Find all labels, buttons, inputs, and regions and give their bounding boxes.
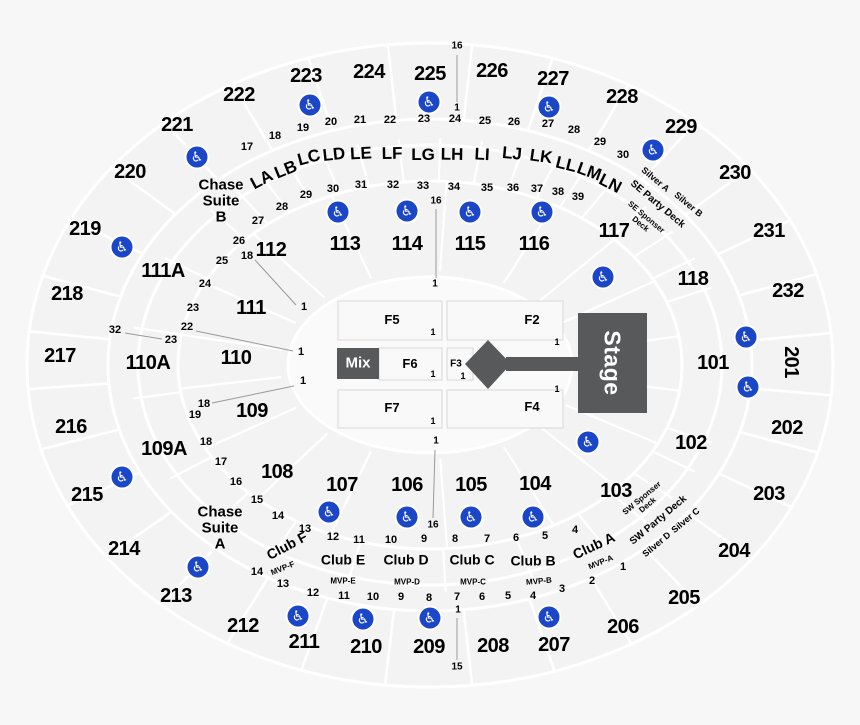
floor-section-f3[interactable]: F3 bbox=[450, 360, 462, 371]
section-117[interactable]: 117 bbox=[599, 221, 630, 243]
section-226[interactable]: 226 bbox=[476, 61, 508, 83]
club-club-d[interactable]: Club D bbox=[383, 552, 428, 567]
section-228[interactable]: 228 bbox=[606, 87, 638, 109]
row-number-21: 21 bbox=[354, 115, 366, 127]
row-number-5: 5 bbox=[542, 531, 548, 543]
suite-chase-suite-a[interactable]: Chase Suite A bbox=[197, 505, 242, 554]
row-number-18: 18 bbox=[241, 251, 253, 263]
wheelchair-accessible-icon: ♿ bbox=[539, 97, 560, 118]
row-number-30: 30 bbox=[327, 184, 339, 196]
row-marker-1: 1 bbox=[455, 606, 461, 617]
section-229[interactable]: 229 bbox=[665, 117, 697, 139]
row-number-3: 3 bbox=[559, 584, 565, 596]
section-210[interactable]: 210 bbox=[350, 637, 382, 659]
section-104[interactable]: 104 bbox=[519, 474, 551, 496]
row-number-14: 14 bbox=[272, 511, 284, 523]
row-marker-16: 16 bbox=[427, 521, 438, 532]
row-number-10: 10 bbox=[367, 592, 379, 604]
section-101[interactable]: 101 bbox=[697, 353, 729, 375]
section-224[interactable]: 224 bbox=[353, 62, 385, 84]
row-number-26: 26 bbox=[233, 236, 245, 248]
row-number-37: 37 bbox=[531, 184, 543, 196]
letter-section-ld[interactable]: LD bbox=[322, 145, 346, 166]
floor-section-box[interactable] bbox=[447, 390, 563, 428]
wheelchair-accessible-icon: ♿ bbox=[187, 147, 208, 168]
row-number-31: 31 bbox=[355, 180, 367, 192]
row-number-19: 19 bbox=[189, 410, 201, 422]
row-number-20: 20 bbox=[325, 117, 337, 129]
wheelchair-accessible-icon: ♿ bbox=[539, 607, 560, 628]
row-number-23: 23 bbox=[187, 303, 199, 315]
row-number-32: 32 bbox=[109, 325, 121, 337]
section-102[interactable]: 102 bbox=[675, 433, 707, 455]
section-206[interactable]: 206 bbox=[607, 617, 639, 639]
row-number-18: 18 bbox=[269, 131, 281, 143]
row-marker-1: 1 bbox=[433, 437, 439, 448]
row-number-1: 1 bbox=[300, 376, 306, 388]
row-number-38: 38 bbox=[552, 187, 564, 199]
section-109a[interactable]: 109A bbox=[141, 439, 187, 461]
row-number-28: 28 bbox=[276, 202, 288, 214]
section-116[interactable]: 116 bbox=[519, 234, 550, 256]
floor-section-f5[interactable]: F5 bbox=[384, 313, 399, 327]
section-108[interactable]: 108 bbox=[261, 462, 293, 484]
section-231[interactable]: 231 bbox=[753, 221, 785, 243]
section-110a[interactable]: 110A bbox=[126, 353, 171, 375]
wheelchair-accessible-icon: ♿ bbox=[353, 609, 374, 630]
row-number-9: 9 bbox=[421, 534, 427, 546]
section-207[interactable]: 207 bbox=[538, 635, 570, 657]
section-223[interactable]: 223 bbox=[290, 66, 322, 88]
section-115[interactable]: 115 bbox=[455, 234, 486, 256]
row-number-14: 14 bbox=[251, 567, 263, 579]
wheelchair-accessible-icon: ♿ bbox=[532, 202, 553, 223]
row-marker-15: 15 bbox=[451, 663, 462, 674]
row-number-12: 12 bbox=[307, 588, 319, 600]
row-number-16: 16 bbox=[230, 477, 242, 489]
letter-section-lg[interactable]: LG bbox=[411, 146, 435, 164]
row-number-29: 29 bbox=[594, 137, 606, 149]
row-marker-1: 1 bbox=[454, 104, 460, 115]
row-number-23: 23 bbox=[418, 114, 430, 126]
section-208[interactable]: 208 bbox=[477, 636, 509, 658]
wheelchair-accessible-icon: ♿ bbox=[420, 608, 441, 629]
wheelchair-accessible-icon: ♿ bbox=[188, 557, 209, 578]
row-marker-16: 16 bbox=[451, 42, 462, 53]
row-number-35: 35 bbox=[481, 183, 493, 195]
wheelchair-accessible-icon: ♿ bbox=[736, 327, 757, 348]
suite-chase-suite-b[interactable]: Chase Suite B bbox=[198, 178, 243, 227]
section-111[interactable]: 111 bbox=[236, 298, 266, 320]
letter-section-li[interactable]: LI bbox=[474, 145, 490, 164]
wheelchair-accessible-icon: ♿ bbox=[738, 377, 759, 398]
row-number-2: 2 bbox=[589, 576, 595, 588]
row-number-10: 10 bbox=[385, 535, 397, 547]
row-number-11: 11 bbox=[353, 535, 365, 547]
wheelchair-accessible-icon: ♿ bbox=[461, 507, 482, 528]
floor-row-marker-1: 1 bbox=[554, 385, 559, 395]
section-109[interactable]: 109 bbox=[236, 401, 268, 423]
row-number-28: 28 bbox=[568, 125, 580, 137]
wheelchair-accessible-icon: ♿ bbox=[300, 95, 321, 116]
row-number-7: 7 bbox=[454, 592, 460, 604]
wheelchair-accessible-icon: ♿ bbox=[419, 92, 440, 113]
floor-section-f6[interactable]: F6 bbox=[402, 357, 417, 371]
row-number-11: 11 bbox=[338, 591, 350, 603]
row-number-32: 32 bbox=[387, 180, 399, 192]
section-215[interactable]: 215 bbox=[71, 485, 103, 507]
row-number-17: 17 bbox=[215, 457, 227, 469]
row-number-8: 8 bbox=[452, 534, 458, 546]
row-number-36: 36 bbox=[507, 183, 519, 195]
letter-section-lf[interactable]: LF bbox=[381, 145, 402, 164]
floor-section-f2[interactable]: F2 bbox=[524, 313, 539, 327]
row-marker-16: 16 bbox=[430, 197, 441, 208]
section-111a[interactable]: 111A bbox=[141, 261, 185, 283]
wheelchair-accessible-icon: ♿ bbox=[288, 606, 309, 627]
floor-row-marker-1: 1 bbox=[554, 338, 559, 348]
section-211[interactable]: 211 bbox=[289, 632, 320, 654]
row-number-6: 6 bbox=[513, 533, 519, 545]
section-232[interactable]: 232 bbox=[772, 281, 804, 303]
row-number-7: 7 bbox=[484, 534, 490, 546]
section-212[interactable]: 212 bbox=[227, 616, 259, 638]
mvp-mvp-e[interactable]: MVP-E bbox=[330, 578, 355, 587]
section-221[interactable]: 221 bbox=[161, 115, 193, 137]
section-205[interactable]: 205 bbox=[668, 588, 700, 610]
section-230[interactable]: 230 bbox=[719, 163, 751, 185]
floor-row-marker-1: 1 bbox=[430, 328, 435, 338]
wheelchair-accessible-icon: ♿ bbox=[112, 467, 133, 488]
floor-row-marker-1: 1 bbox=[430, 417, 435, 427]
wheelchair-accessible-icon: ♿ bbox=[578, 432, 599, 453]
row-number-4: 4 bbox=[572, 525, 578, 537]
section-106[interactable]: 106 bbox=[391, 475, 423, 497]
arena-seating-map: Stage Mix 223224225226227222228221229220… bbox=[0, 0, 860, 725]
wheelchair-accessible-icon: ♿ bbox=[319, 502, 340, 523]
stage-runway bbox=[506, 357, 580, 371]
floor-row-marker-1: 1 bbox=[460, 372, 465, 382]
row-number-25: 25 bbox=[216, 256, 228, 268]
section-219[interactable]: 219 bbox=[69, 219, 101, 241]
letter-section-lh[interactable]: LH bbox=[441, 146, 464, 165]
row-number-25: 25 bbox=[479, 116, 491, 128]
section-112[interactable]: 112 bbox=[256, 240, 287, 262]
section-107[interactable]: 107 bbox=[326, 475, 358, 497]
section-110[interactable]: 110 bbox=[221, 348, 252, 370]
letter-section-lj[interactable]: LJ bbox=[501, 144, 522, 164]
club-club-e[interactable]: Club E bbox=[321, 552, 365, 567]
row-number-22: 22 bbox=[384, 115, 396, 127]
wheelchair-accessible-icon: ♿ bbox=[397, 201, 418, 222]
section-218[interactable]: 218 bbox=[51, 284, 83, 306]
row-number-12: 12 bbox=[327, 532, 339, 544]
floor-section-box[interactable] bbox=[447, 301, 563, 340]
mvp-mvp-c[interactable]: MVP-C bbox=[460, 579, 486, 588]
row-number-4: 4 bbox=[530, 591, 536, 603]
section-113[interactable]: 113 bbox=[330, 234, 361, 256]
section-220[interactable]: 220 bbox=[114, 162, 146, 184]
section-222[interactable]: 222 bbox=[223, 85, 255, 107]
club-club-c[interactable]: Club C bbox=[449, 552, 494, 567]
row-number-24: 24 bbox=[199, 279, 211, 291]
mix-label: Mix bbox=[345, 355, 370, 372]
wheelchair-accessible-icon: ♿ bbox=[643, 140, 664, 161]
row-number-29: 29 bbox=[300, 190, 312, 202]
row-number-18: 18 bbox=[200, 437, 212, 449]
row-marker-1: 1 bbox=[432, 280, 438, 291]
section-225[interactable]: 225 bbox=[414, 64, 446, 86]
floor-section-f4[interactable]: F4 bbox=[524, 400, 539, 414]
row-number-13: 13 bbox=[277, 579, 289, 591]
row-number-1: 1 bbox=[620, 562, 626, 574]
mvp-mvp-d[interactable]: MVP-D bbox=[394, 579, 420, 588]
letter-section-lk[interactable]: LK bbox=[528, 146, 553, 167]
section-204[interactable]: 204 bbox=[718, 541, 750, 563]
section-105[interactable]: 105 bbox=[455, 475, 487, 497]
row-number-6: 6 bbox=[479, 592, 485, 604]
wheelchair-accessible-icon: ♿ bbox=[397, 507, 418, 528]
section-217[interactable]: 217 bbox=[44, 346, 76, 368]
letter-section-le[interactable]: LE bbox=[350, 144, 373, 163]
wheelchair-accessible-icon: ♿ bbox=[112, 237, 133, 258]
wheelchair-accessible-icon: ♿ bbox=[523, 507, 544, 528]
section-114[interactable]: 114 bbox=[392, 234, 423, 256]
row-number-9: 9 bbox=[398, 592, 404, 604]
row-number-26: 26 bbox=[508, 117, 520, 129]
row-number-5: 5 bbox=[505, 591, 511, 603]
row-number-22: 22 bbox=[181, 322, 193, 334]
wheelchair-accessible-icon: ♿ bbox=[460, 202, 481, 223]
row-number-1: 1 bbox=[301, 302, 307, 314]
row-number-39: 39 bbox=[572, 192, 584, 204]
section-118[interactable]: 118 bbox=[678, 269, 709, 291]
row-number-1: 1 bbox=[298, 347, 304, 359]
section-201[interactable]: 201 bbox=[779, 346, 801, 378]
club-club-b[interactable]: Club B bbox=[510, 553, 555, 568]
wheelchair-accessible-icon: ♿ bbox=[593, 267, 614, 288]
section-216[interactable]: 216 bbox=[55, 417, 87, 439]
wheelchair-accessible-icon: ♿ bbox=[328, 202, 349, 223]
row-number-27: 27 bbox=[542, 119, 554, 131]
section-103[interactable]: 103 bbox=[600, 481, 632, 503]
floor-row-marker-1: 1 bbox=[430, 370, 435, 380]
floor-section-f7[interactable]: F7 bbox=[384, 401, 399, 415]
row-number-17: 17 bbox=[241, 142, 253, 154]
row-number-33: 33 bbox=[417, 181, 429, 193]
section-209[interactable]: 209 bbox=[413, 637, 445, 659]
section-227[interactable]: 227 bbox=[537, 69, 569, 91]
row-number-19: 19 bbox=[297, 123, 309, 135]
row-number-8: 8 bbox=[426, 593, 432, 605]
section-202[interactable]: 202 bbox=[771, 418, 803, 440]
stage-label: Stage bbox=[599, 330, 626, 395]
section-203[interactable]: 203 bbox=[753, 484, 785, 506]
section-214[interactable]: 214 bbox=[108, 539, 140, 561]
section-213[interactable]: 213 bbox=[160, 586, 192, 608]
row-number-15: 15 bbox=[251, 495, 263, 507]
row-number-24: 24 bbox=[449, 114, 461, 126]
row-number-23: 23 bbox=[165, 335, 177, 347]
row-number-30: 30 bbox=[617, 150, 629, 162]
row-number-27: 27 bbox=[252, 216, 264, 228]
row-number-34: 34 bbox=[448, 182, 460, 194]
